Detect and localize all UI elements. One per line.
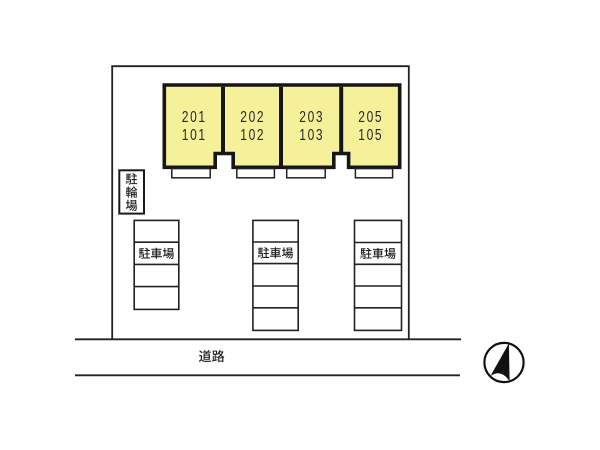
svg-text:103: 103 xyxy=(299,125,324,143)
svg-text:202: 202 xyxy=(240,107,265,125)
svg-text:105: 105 xyxy=(358,125,383,143)
svg-text:201: 201 xyxy=(182,107,207,125)
svg-text:203: 203 xyxy=(299,107,324,125)
svg-text:205: 205 xyxy=(358,107,383,125)
svg-text:102: 102 xyxy=(240,125,265,143)
svg-text:101: 101 xyxy=(182,125,207,143)
